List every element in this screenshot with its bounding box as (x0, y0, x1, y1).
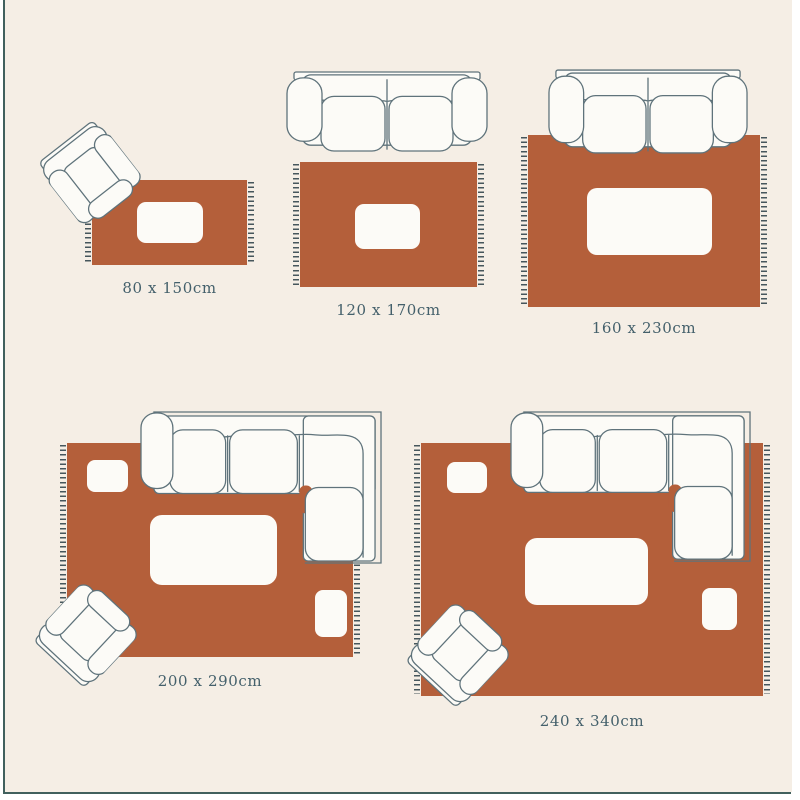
rug-size-label: 240 x 340cm (421, 712, 763, 730)
coffee-table (587, 188, 712, 255)
sectional-sofa (140, 410, 383, 567)
side-table (447, 462, 487, 493)
rug-size-guide-illustration: 80 x 150cm 120 x 170cm 160 x 230cm 200 x… (0, 0, 800, 800)
rug-size-label: 200 x 290cm (67, 672, 353, 690)
side-table (87, 460, 128, 492)
coffee-table (137, 202, 203, 243)
rug-size-label: 80 x 150cm (92, 279, 247, 297)
scene-rug-80x150: 80 x 150cm (0, 0, 300, 330)
rug-size-label: 120 x 170cm (300, 301, 477, 319)
coffee-table (355, 204, 420, 249)
sofa (547, 69, 749, 155)
sofa (285, 71, 489, 153)
scene-rug-240x340: 240 x 340cm (0, 0, 1, 1)
frame-border-bottom (3, 792, 791, 794)
side-table (315, 590, 347, 637)
side-table (702, 588, 737, 630)
rug-size-label: 160 x 230cm (528, 319, 760, 337)
sectional-sofa (510, 410, 752, 565)
